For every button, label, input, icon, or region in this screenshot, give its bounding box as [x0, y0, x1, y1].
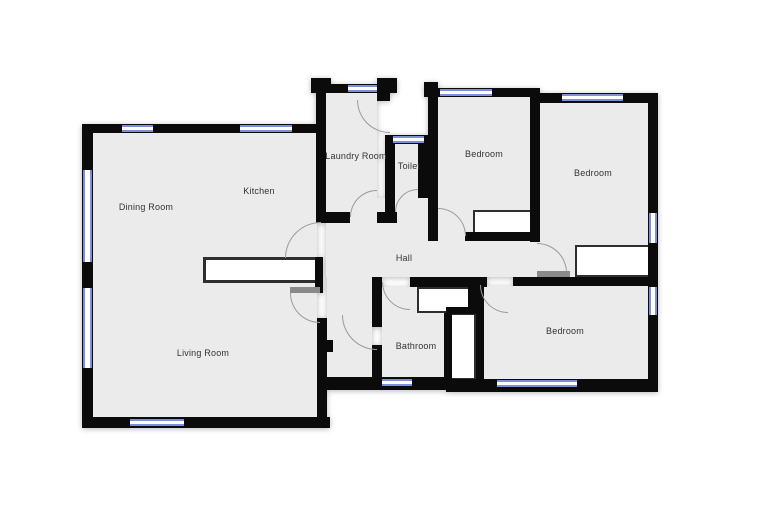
wall-closet-left [444, 313, 452, 390]
room-label-bathroom: Bathroom [396, 341, 437, 351]
wall-laundry-bottom-right [377, 212, 397, 223]
window-bedroom3-bottom [497, 380, 577, 387]
room-label-laundry-room: Laundry Room [325, 151, 386, 161]
window-dining-top-1 [122, 125, 153, 132]
wall-bathroom-top [410, 277, 487, 287]
window-bedroom1-top [440, 89, 492, 96]
window-kitchen-top [240, 125, 292, 132]
room-label-bedroom-top-middle: Bedroom [465, 149, 503, 159]
closet [450, 313, 476, 380]
room-label-toilet: Toilet [398, 161, 420, 171]
wall-bathroom-left-lower [372, 345, 382, 390]
room-label-kitchen: Kitchen [243, 186, 274, 196]
wall-bedroom1-bottom [465, 232, 540, 241]
wall-closet-right [476, 287, 484, 392]
door-leaf-bedroom2 [537, 271, 570, 277]
wall-living-hall [317, 318, 327, 428]
floorplan-drawing: Dining Room Kitchen Laundry Room Toilet … [0, 0, 768, 512]
room-label-bedroom-top-right: Bedroom [574, 168, 612, 178]
wall-laundry-bottom-left [316, 212, 350, 223]
floorplan-canvas: Dining Room Kitchen Laundry Room Toilet … [0, 0, 768, 512]
wall-living-hall-pilaster [317, 340, 333, 352]
room-label-living-room: Living Room [177, 348, 229, 358]
window-bathroom-bottom [382, 379, 412, 386]
window-laundry-top [348, 85, 377, 92]
wall-laundry-stub-left [311, 78, 331, 85]
room-label-dining-room: Dining Room [119, 202, 173, 212]
wall-bedroom1-bedroom2 [530, 93, 540, 242]
wall-bedroom3-top [513, 277, 658, 286]
wall-bottom-left-block [82, 417, 330, 428]
window-bedroom3-right [649, 287, 657, 315]
kitchen-counter [203, 257, 318, 283]
wardrobe-bedroom-top-right [575, 245, 652, 277]
window-dining-left [83, 170, 92, 262]
door-leaf-living [290, 287, 320, 293]
window-living-left [83, 288, 92, 368]
window-bedroom2-top [562, 94, 623, 101]
wall-toilet-left [385, 135, 395, 217]
room-label-bedroom-bottom-right: Bedroom [546, 326, 584, 336]
window-living-bottom [130, 419, 184, 426]
wall-laundry-right-upper [377, 84, 390, 101]
window-bedroom2-right [649, 213, 657, 243]
window-toilet-top [393, 136, 424, 143]
wall-bedroom1-left [428, 88, 438, 241]
room-label-hall: Hall [396, 253, 412, 263]
